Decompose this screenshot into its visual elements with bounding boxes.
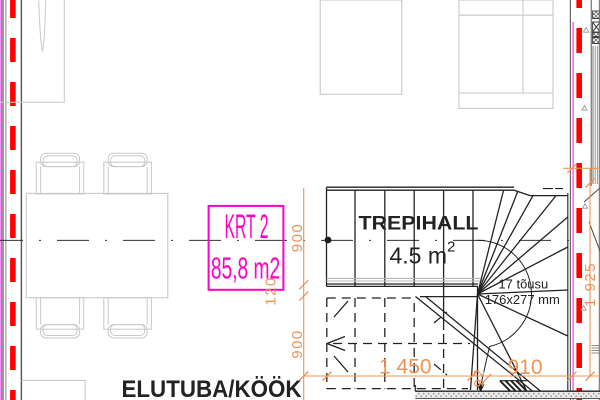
svg-text:900: 900 xyxy=(289,329,306,359)
svg-text:KRT 2: KRT 2 xyxy=(225,207,269,245)
svg-text:910: 910 xyxy=(508,356,543,379)
svg-text:900: 900 xyxy=(289,223,306,253)
svg-text:TREPIHALL: TREPIHALL xyxy=(359,214,479,235)
svg-text:4.5 m: 4.5 m xyxy=(390,242,448,268)
svg-text:2: 2 xyxy=(447,239,455,256)
svg-text:17 tõusu: 17 tõusu xyxy=(498,277,548,292)
svg-text:1 925: 1 925 xyxy=(582,262,599,307)
svg-text:ELUTUBA/KÖÖK: ELUTUBA/KÖÖK xyxy=(122,376,303,400)
svg-text:120: 120 xyxy=(263,276,280,306)
svg-text:92: 92 xyxy=(471,368,488,388)
svg-text:176x277 mm: 176x277 mm xyxy=(485,292,560,307)
svg-text:1 450: 1 450 xyxy=(379,356,432,379)
